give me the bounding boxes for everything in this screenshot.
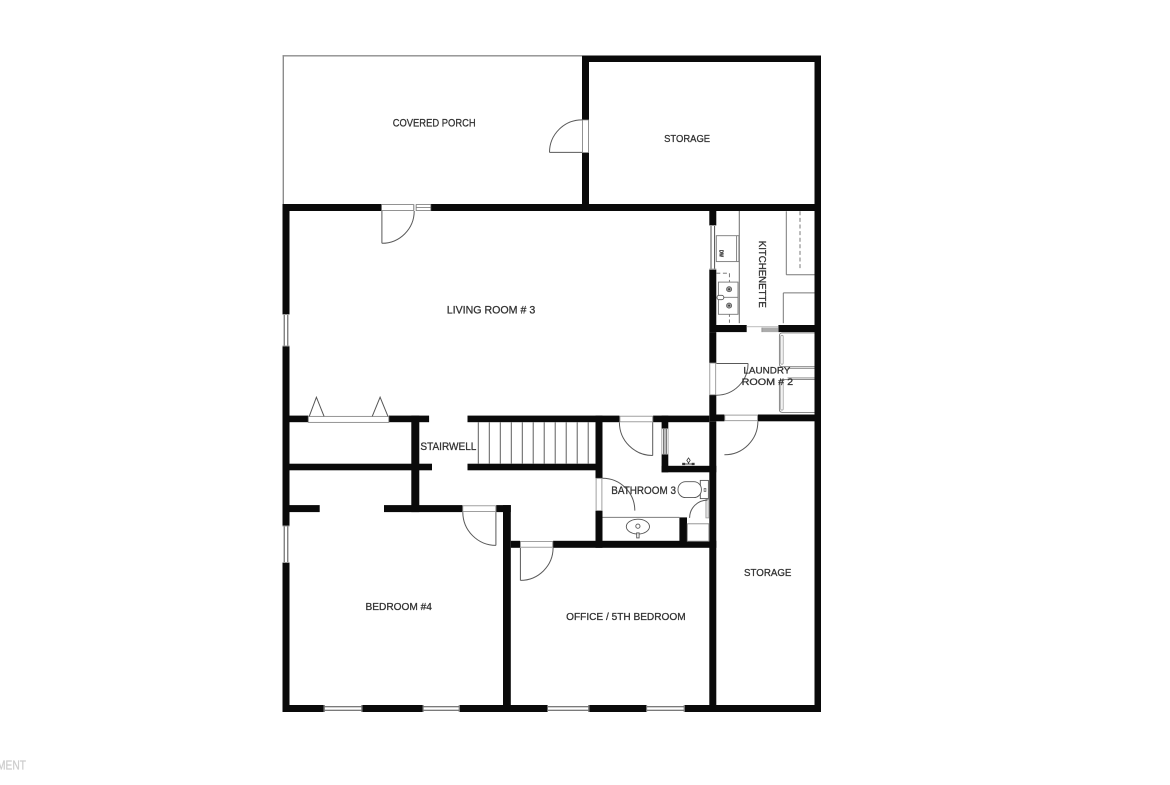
svg-text:BEDROOM #4: BEDROOM #4 <box>366 601 433 613</box>
svg-text:OFFICE / 5TH BEDROOM: OFFICE / 5TH BEDROOM <box>566 611 686 623</box>
svg-text:LAUNDRY: LAUNDRY <box>743 366 791 377</box>
svg-text:COVERED PORCH: COVERED PORCH <box>393 118 476 130</box>
svg-text:MENT: MENT <box>0 759 26 773</box>
svg-text:STAIRWELL: STAIRWELL <box>420 441 476 453</box>
svg-text:DW: DW <box>717 250 723 257</box>
svg-text:KITCHENETTE: KITCHENETTE <box>756 241 767 308</box>
svg-text:ROOM # 2: ROOM # 2 <box>742 377 794 388</box>
svg-text:LIVING ROOM # 3: LIVING ROOM # 3 <box>447 305 536 317</box>
svg-text:STORAGE: STORAGE <box>744 567 791 579</box>
svg-text:BATHROOM 3: BATHROOM 3 <box>611 485 676 497</box>
svg-text:STORAGE: STORAGE <box>664 133 710 145</box>
